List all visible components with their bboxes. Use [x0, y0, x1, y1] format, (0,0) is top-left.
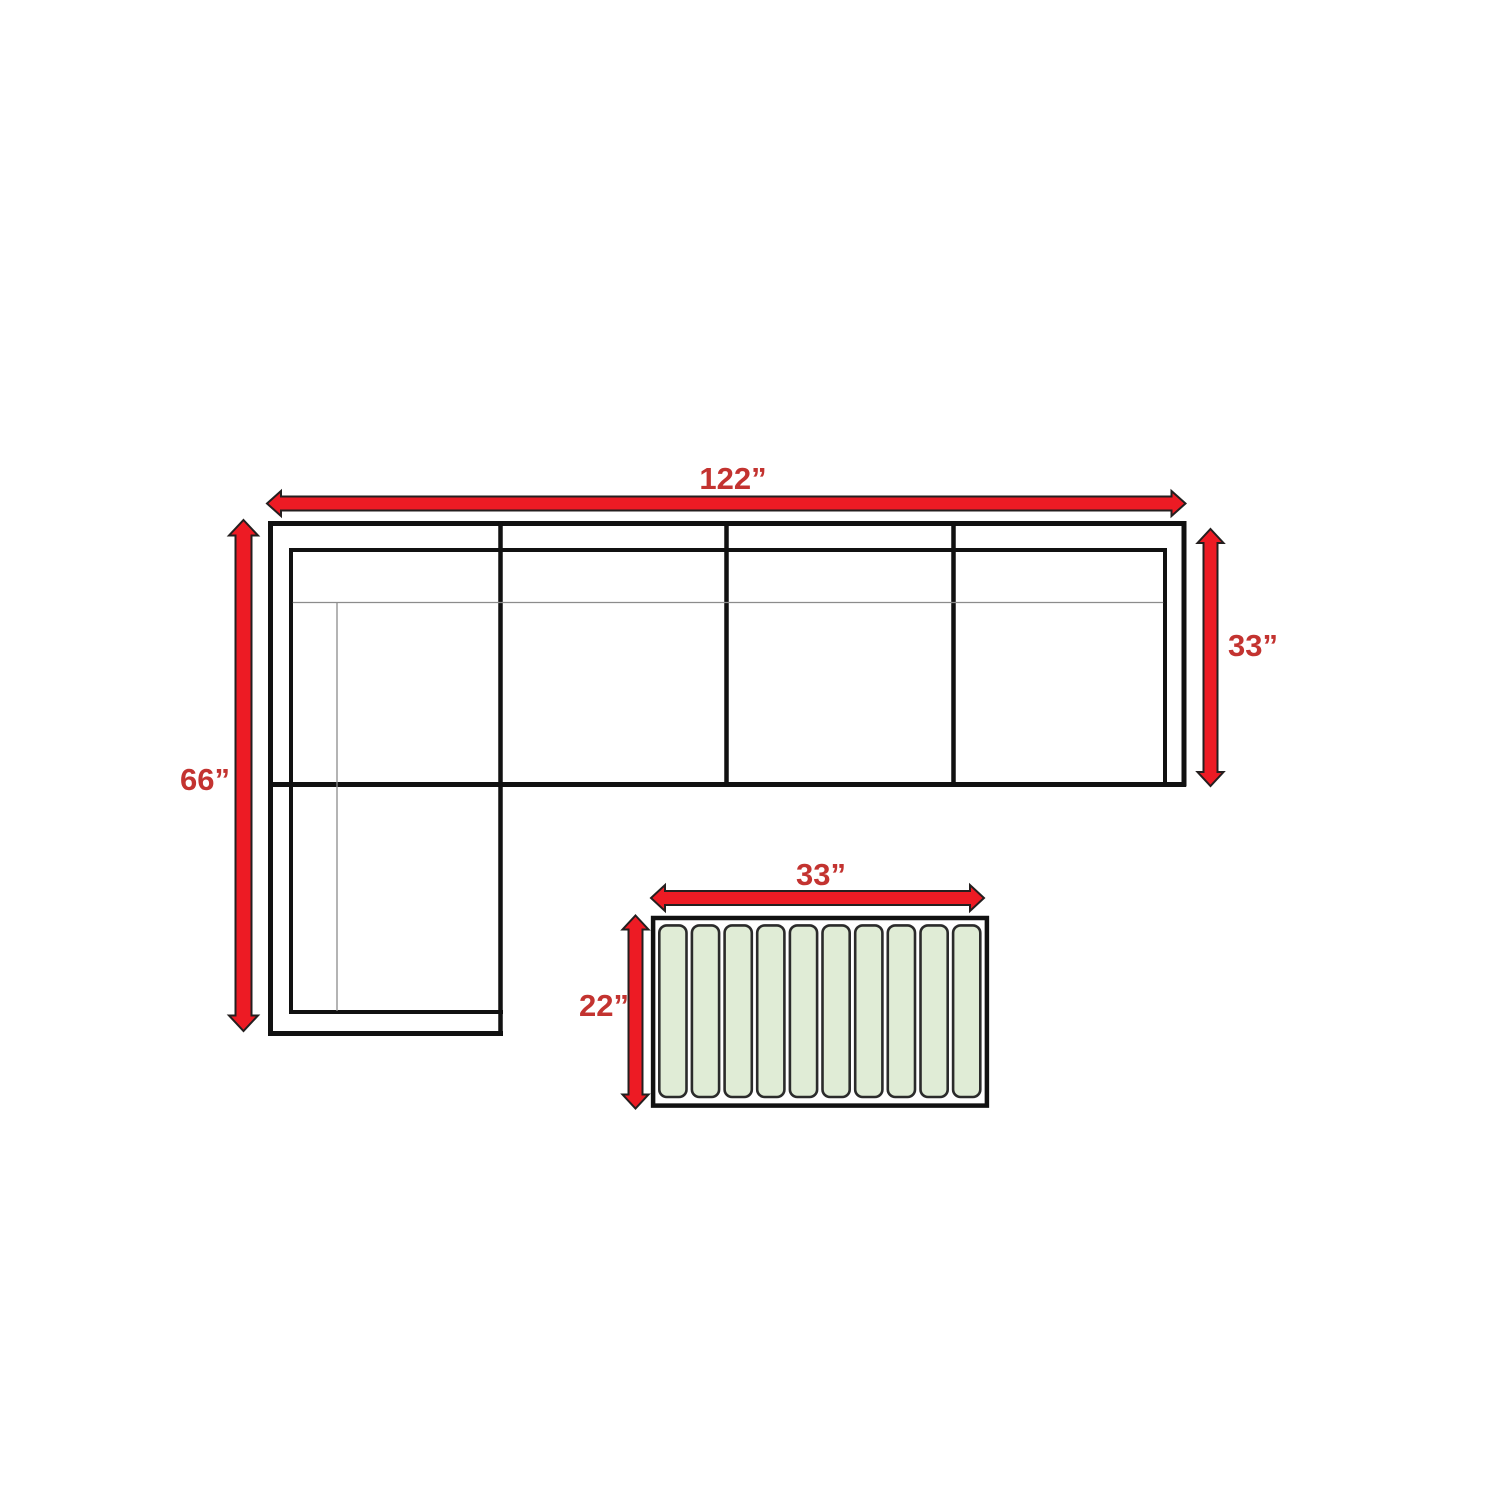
svg-text:33”: 33” — [1228, 628, 1278, 663]
svg-text:66”: 66” — [180, 762, 230, 797]
svg-text:33”: 33” — [796, 857, 846, 892]
svg-text:122”: 122” — [699, 461, 766, 496]
svg-text:22”: 22” — [579, 988, 629, 1023]
